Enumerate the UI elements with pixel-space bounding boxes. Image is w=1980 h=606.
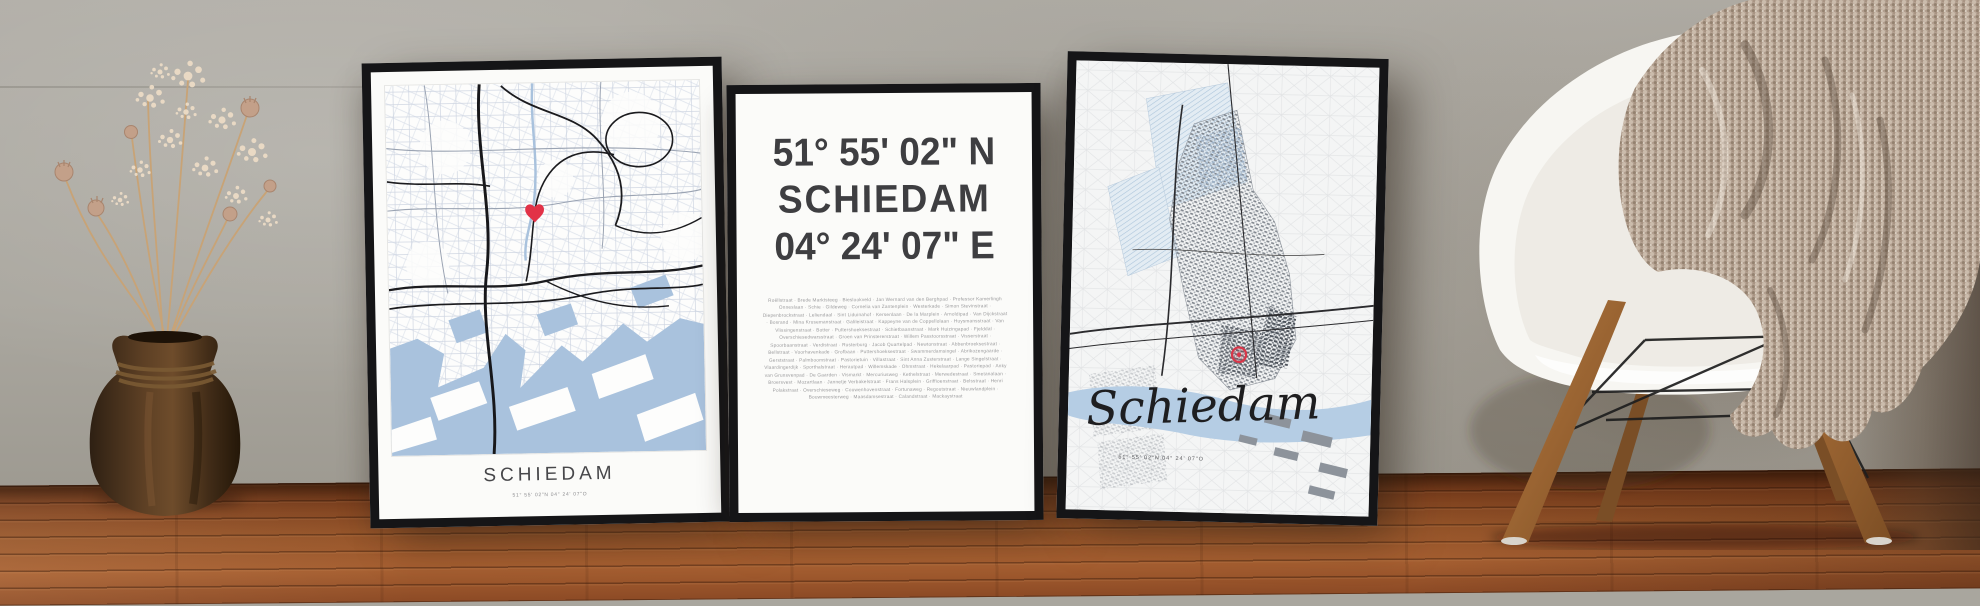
municipality-map-graphic [1066, 60, 1380, 516]
white-armchair-with-blanket [1440, 0, 1980, 550]
chair-floor-shadow [1490, 524, 1920, 550]
poster-left-map [384, 79, 707, 457]
city-map-graphic [385, 80, 706, 456]
dried-flower-vase [0, 20, 320, 550]
poster-middle-headline: 51° 55' 02" N SCHIEDAM 04° 24' 07" E [743, 128, 1025, 271]
poster-left-title: SCHIEDAM [378, 461, 720, 490]
scene-photo: { "posters": { "left": { "title": "SCHIE… [0, 0, 1980, 550]
poster-right-map [1066, 60, 1380, 516]
street-list: Roëllstraat · Brede Marktsteeg · Biesloo… [762, 295, 1009, 402]
red-location-circle-icon [1232, 347, 1246, 362]
poster-middle-frame: 51° 55' 02" N SCHIEDAM 04° 24' 07" E Roë… [726, 83, 1043, 522]
poster-right-frame: Schiedam 51° 55' 02"N 04° 24' 07"O [1056, 51, 1388, 526]
city-name-text: SCHIEDAM [744, 175, 1026, 224]
poster-left-frame: SCHIEDAM 51° 55' 02"N 04° 24' 07"O [362, 57, 731, 529]
wooden-vase [90, 331, 241, 516]
poster-right-title: Schiedam [1086, 379, 1322, 433]
poster-left-coordinates: 51° 55' 02"N 04° 24' 07"O [379, 489, 721, 502]
latitude-text: 51° 55' 02" N [743, 128, 1025, 177]
poppy-seed-pods [55, 99, 276, 221]
poppy-pod-crowns [58, 96, 256, 203]
gypsophila-puffs [111, 61, 278, 227]
longitude-text: 04° 24' 07" E [744, 222, 1026, 271]
